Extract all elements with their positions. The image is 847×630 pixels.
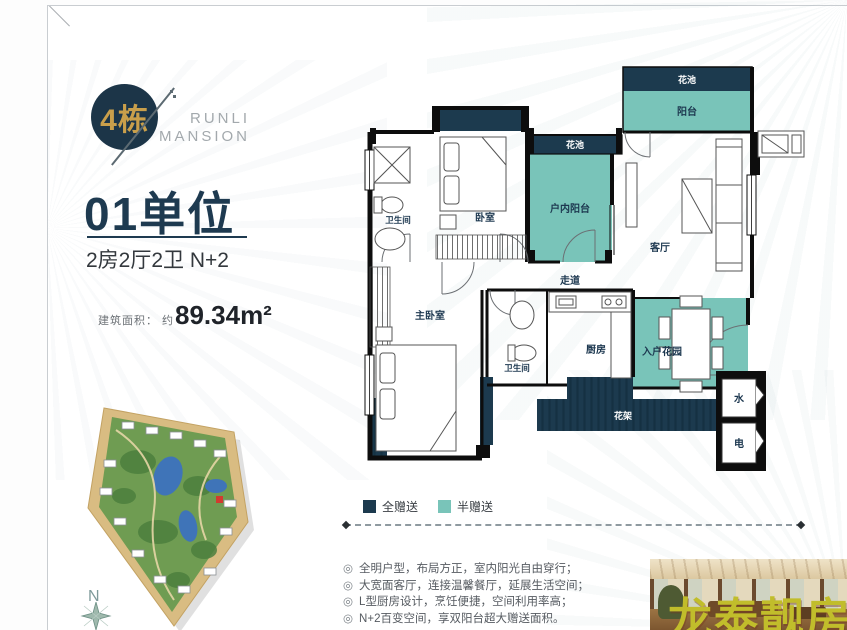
siteplan-marker [216,496,223,503]
bullet-icon: ◎ [343,594,353,611]
area-label: 建筑面积： [98,312,158,328]
floor-plan: 花池 阳台 花池 户内阳台 卫生间 卧室 客厅 走道 主卧室 卫生间 厨房 入户… [350,55,812,517]
unit-title: 01单位 [84,178,235,244]
bathroom2-fixtures [508,301,536,361]
meter-boxes [716,371,766,471]
bullet-icon: ◎ [343,611,353,628]
living-room-furniture [626,139,742,271]
room-label-flower-rack: 花架 [614,410,632,421]
legend-swatch-half-gift [438,500,451,513]
feature-text: N+2百变空间，享双阳台超大赠送面积。 [359,611,564,628]
feature-item: ◎全明户型，布局方正，室内阳光自由穿行； [343,561,589,578]
kitchen-counter [549,292,631,378]
feature-item: ◎N+2百变空间，享双阳台超大赠送面积。 [343,611,589,628]
room-label-flower-bed-top: 花池 [678,74,696,85]
brand-line2: MANSION [150,128,250,146]
agency-watermark: 龙泰靓房 [668,583,847,630]
room-label-electric: 电 [734,437,744,450]
feature-text: L型厨房设计，烹饪便捷，空间利用率高； [359,594,572,611]
compass-star-icon [76,602,116,630]
brand-name: RUNLI MANSION [150,110,250,146]
room-label-bathroom2: 卫生间 [504,363,530,373]
bullet-icon: ◎ [343,578,353,595]
corner-curl-decoration [48,6,70,28]
room-label-bedroom: 卧室 [475,211,495,224]
bedroom-bed [440,137,506,229]
room-label-water: 水 [733,392,745,405]
room-label-bathroom1: 卫生间 [385,215,411,225]
room-label-corridor: 走道 [559,274,580,287]
master-bed [376,327,456,451]
slash-dots-decoration [170,90,173,93]
legend-label-half-gift: 半赠送 [457,498,493,515]
feature-item: ◎L型厨房设计，烹饪便捷，空间利用率高； [343,594,589,611]
feature-text: 大宽面客厅，连接温馨餐厅，延展生活空间； [359,578,589,595]
feature-list: ◎全明户型，布局方正，室内阳光自由穿行； ◎大宽面客厅，连接温馨餐厅，延展生活空… [343,561,589,627]
legend-label-full-gift: 全赠送 [382,498,418,515]
room-label-balcony: 阳台 [677,105,697,118]
room-label-living-room: 客厅 [649,241,670,254]
legend-item-half-gift: 半赠送 [438,498,493,515]
ac-unit [758,131,804,157]
area-approx: 约 [162,312,173,328]
room-label-entrance-garden: 入户花园 [642,345,682,358]
bullet-icon: ◎ [343,561,353,578]
dimension-line [345,524,802,526]
brand-line1: RUNLI [150,110,250,128]
room-label-master-bedroom: 主卧室 [415,309,445,322]
legend-swatch-full-gift [363,500,376,513]
feature-item: ◎大宽面客厅，连接温馨餐厅，延展生活空间； [343,578,589,595]
feature-text: 全明户型，布局方正，室内阳光自由穿行； [359,561,578,578]
legend-item-full-gift: 全赠送 [363,498,418,515]
photo-ceiling [650,559,847,579]
building-badge-label: 4栋 [100,95,149,139]
legend: 全赠送 半赠送 [363,498,493,515]
room-label-flower-bed-mid: 花池 [566,139,584,150]
unit-spec: 2房2厅2卫 N+2 [86,244,229,274]
unit-title-underline [87,236,247,238]
flyer-page: 4栋 RUNLI MANSION 01单位 2房2厅2卫 N+2 建筑面积： 约… [0,0,847,630]
room-label-indoor-balcony: 户内阳台 [549,202,590,215]
area-value: 89.34m² [175,300,272,331]
area-row: 建筑面积： 约 89.34m² [98,300,272,331]
room-label-kitchen: 厨房 [586,343,606,356]
